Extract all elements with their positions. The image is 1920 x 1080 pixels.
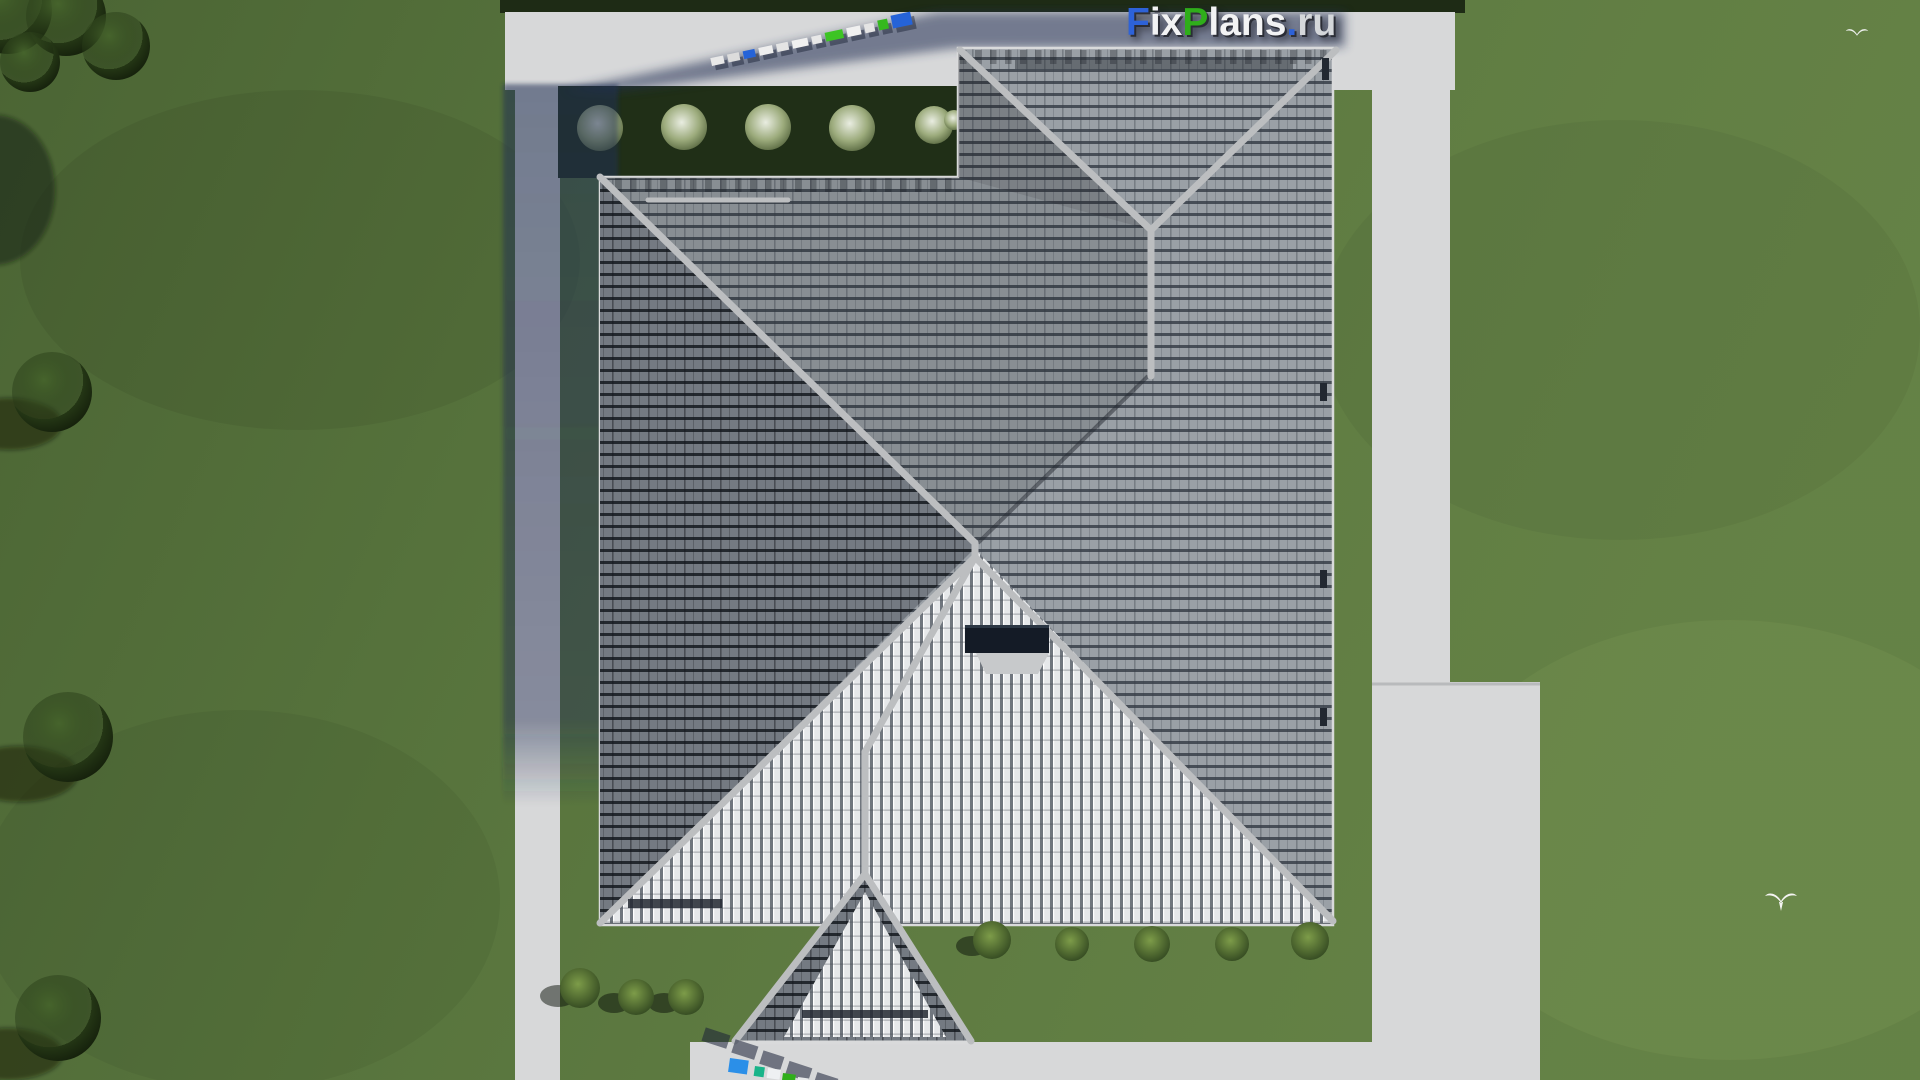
downspout — [1320, 570, 1327, 588]
downspout — [1322, 58, 1329, 80]
logo-segment: ru — [1297, 1, 1336, 45]
hedge-bed — [558, 86, 964, 178]
logo-segment: ix — [1150, 1, 1183, 45]
house-roof — [600, 48, 1336, 1043]
tile-shadow-line — [1015, 60, 1293, 69]
logo-segment: F — [1126, 1, 1150, 45]
logo-segment: . — [1286, 1, 1297, 45]
eave-shadow — [602, 178, 956, 192]
logo-segment: P — [1182, 1, 1208, 45]
site-render — [0, 0, 1920, 1080]
downspout — [1320, 708, 1327, 726]
watermark-logo: FixPlans.ru — [1126, 1, 1336, 45]
aerial-render: FixPlans.ru — [0, 0, 1920, 1080]
right-path — [1372, 12, 1450, 684]
logo-segment: lans — [1208, 1, 1286, 45]
downspout — [1320, 383, 1327, 401]
patio — [1372, 682, 1540, 1080]
